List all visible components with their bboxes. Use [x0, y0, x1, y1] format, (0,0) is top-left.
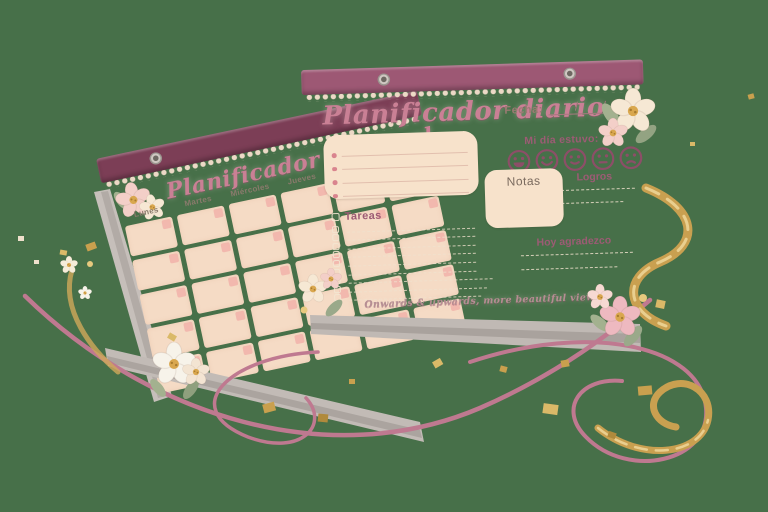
calendar-cell [250, 297, 303, 337]
date-marker [294, 334, 305, 345]
date-field: Fecha: / / [504, 100, 635, 117]
eyelet-icon [148, 151, 163, 166]
calendar-cell [309, 320, 362, 360]
checkbox-icon [334, 294, 341, 301]
date-marker [190, 356, 201, 367]
gratitude-label: Hoy agradezco [536, 234, 611, 248]
flower-sprigs-left [56, 252, 100, 308]
checkbox-icon [332, 234, 339, 241]
note-lines [341, 139, 469, 197]
date-marker [287, 299, 298, 310]
logros-line [561, 188, 635, 191]
checkbox-icon [332, 226, 339, 233]
date-slash: / [575, 99, 579, 113]
gratitude-line [521, 252, 633, 257]
calendar-cell [258, 331, 311, 371]
checkbox-icon [334, 286, 341, 293]
date-marker [346, 323, 357, 334]
calendar-cell [147, 319, 200, 359]
checkbox-icon [333, 251, 340, 258]
date-marker [183, 321, 194, 332]
date-marker [272, 231, 283, 242]
date-marker [176, 287, 187, 298]
calendar-cell [228, 194, 281, 234]
task-list [332, 219, 493, 301]
eyelet-icon [563, 67, 576, 80]
calendar-cell [198, 308, 251, 348]
notas-box: Notas [484, 168, 564, 228]
checkbox-icon [333, 269, 340, 276]
calendar-cell [177, 205, 230, 245]
date-marker [213, 208, 224, 219]
eyelet-icon [377, 73, 390, 86]
date-marker [220, 242, 231, 253]
calendar-cell [184, 240, 237, 280]
date-marker [280, 265, 291, 276]
tareas-label: Tareas [344, 210, 381, 223]
date-blank-line: / / [549, 100, 635, 116]
checkbox-icon [333, 260, 340, 267]
logros-label: Logros [576, 170, 612, 183]
date-marker [228, 276, 239, 287]
date-slash: / [603, 99, 607, 113]
date-marker [169, 253, 180, 264]
calendar-cell [132, 251, 185, 291]
calendar-cell [154, 353, 207, 393]
checkbox-icon [332, 213, 340, 221]
calendar-cell [206, 342, 259, 382]
mood-slight-smile-icon [562, 146, 589, 173]
date-marker [242, 345, 253, 356]
calendar-cell [243, 263, 296, 303]
daily-planner-pad: Planificador diario Fecha: / / Mi día es… [305, 60, 647, 318]
mood-label: Mi día estuvo: [524, 133, 599, 147]
date-marker [235, 310, 246, 321]
checkbox-icon [332, 243, 339, 250]
date-marker [265, 197, 276, 208]
checkbox-icon [334, 277, 341, 284]
notes-lined-box [323, 131, 479, 200]
calendar-cell [191, 274, 244, 314]
notas-label: Notas [484, 173, 562, 189]
fecha-label: Fecha: [504, 104, 543, 117]
calendar-cell [236, 229, 289, 269]
calendar-cell [139, 285, 192, 325]
date-marker [161, 219, 172, 230]
logros-line [561, 201, 623, 204]
scene: Planificador mensual LunesMartesMiércole… [0, 0, 768, 512]
mood-sad-icon [618, 144, 645, 171]
mood-neutral-icon [590, 145, 617, 172]
tareas-header: Tareas [331, 210, 381, 224]
gratitude-line [521, 266, 617, 270]
note-line [343, 179, 469, 196]
